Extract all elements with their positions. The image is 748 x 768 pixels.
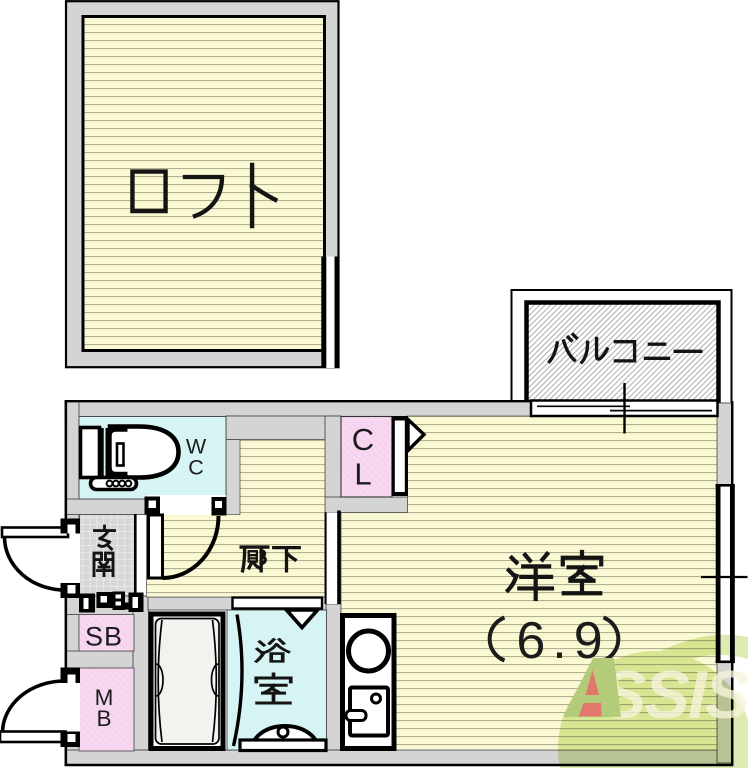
svg-text:L: L bbox=[354, 457, 371, 492]
svg-text:SB: SB bbox=[85, 622, 123, 652]
svg-text:C: C bbox=[188, 456, 204, 480]
svg-text:B: B bbox=[96, 706, 111, 731]
svg-text:SSIST: SSIST bbox=[601, 657, 748, 733]
svg-text:C: C bbox=[352, 422, 374, 457]
